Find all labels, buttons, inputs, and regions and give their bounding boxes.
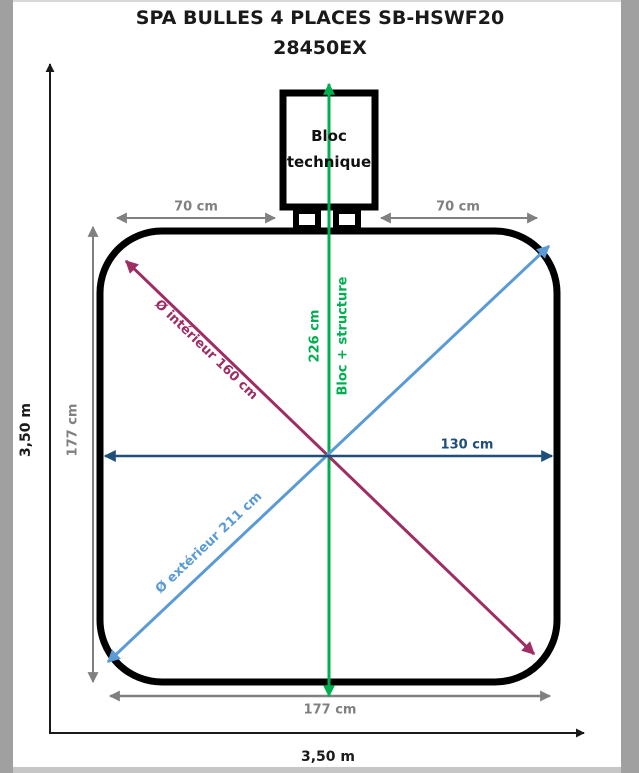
label-350m-left: 3,50 m bbox=[18, 403, 34, 457]
spa-dimension-diagram: SPA BULLES 4 PLACES SB-HSWF20 28450EX bbox=[0, 0, 639, 773]
label-177cm-left: 177 cm bbox=[66, 404, 81, 457]
bloc-foot-left bbox=[296, 211, 318, 228]
label-177cm-bottom: 177 cm bbox=[304, 703, 357, 718]
label-226cm: 226 cm bbox=[308, 310, 323, 363]
label-bloc-structure: Bloc + structure bbox=[336, 277, 351, 396]
bloc-technique-line2: technique bbox=[287, 153, 371, 171]
bloc-foot-right bbox=[336, 211, 358, 228]
label-70cm-right: 70 cm bbox=[436, 200, 480, 215]
bloc-technique-label: Bloc technique bbox=[283, 93, 375, 205]
label-130cm: 130 cm bbox=[441, 438, 494, 453]
label-70cm-left: 70 cm bbox=[174, 200, 218, 215]
bloc-technique-line1: Bloc bbox=[311, 127, 347, 145]
label-350m-bottom: 3,50 m bbox=[301, 749, 355, 765]
